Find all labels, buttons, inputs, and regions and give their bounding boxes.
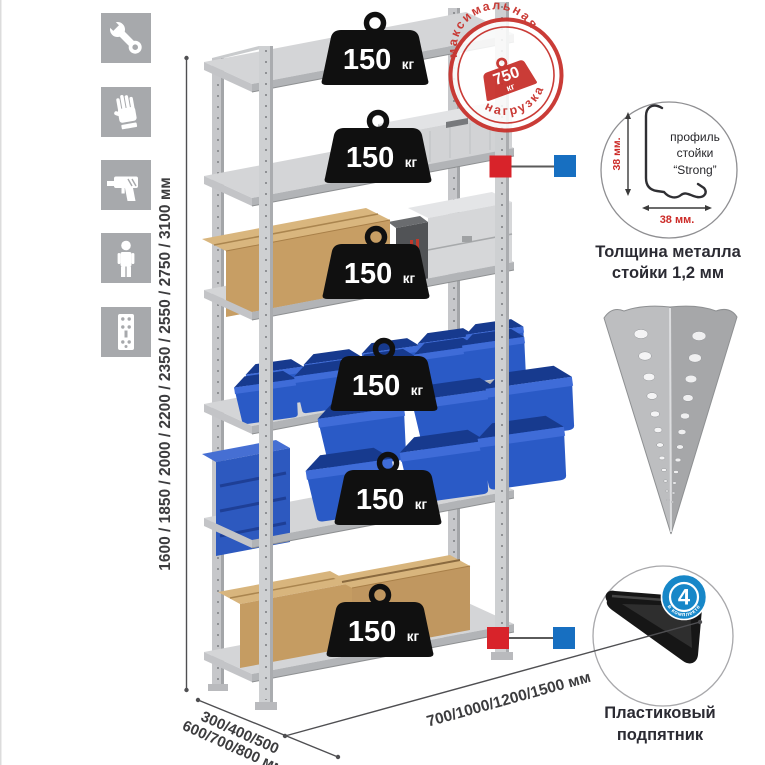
- profile-dim-horizontal-label: 38 мм.: [660, 214, 695, 226]
- marker-red-square-bottom: [487, 627, 509, 649]
- drill-icon: [101, 160, 151, 210]
- scene: 150 кг: [0, 0, 765, 765]
- gloves-icon: [101, 87, 151, 137]
- shelving-rack-infographic: 150 кг: [0, 0, 765, 765]
- width-dimension-label: 700/1000/1200/1500 мм: [425, 669, 593, 731]
- marker-red-square-top: [490, 156, 512, 178]
- features-icon-panel: [101, 13, 151, 357]
- profile-caption-line2: стойки 1,2 мм: [612, 264, 724, 282]
- marker-blue-square-top: [554, 155, 576, 177]
- height-dimension: 1600 / 1850 / 2000 / 2200 / 2350 / 2550 …: [157, 56, 189, 692]
- foot-caption-line2: подпятник: [617, 726, 704, 744]
- angle-post-image: [604, 306, 737, 534]
- profile-label-line2: стойки: [677, 146, 714, 160]
- foot-callout-marker: [487, 627, 575, 649]
- height-dimension-label: 1600 / 1850 / 2000 / 2200 / 2350 / 2550 …: [157, 177, 174, 571]
- perforated-post-icon: [101, 307, 151, 357]
- profile-callout-marker: [490, 155, 577, 178]
- page-edge-line: [0, 0, 2, 765]
- badge-value: 4: [678, 585, 691, 610]
- quantity-badge: 4 в комплекте: [662, 575, 707, 620]
- profile-caption-line1: Толщина металла: [595, 243, 741, 261]
- marker-blue-square-bottom: [553, 627, 575, 649]
- wrench-icon: [101, 13, 151, 63]
- profile-label-line1: профиль: [670, 130, 720, 144]
- person-icon: [101, 233, 151, 283]
- profile-detail: 38 мм. 38 мм. профиль стойки “Strong” То…: [595, 102, 741, 282]
- plastic-foot-detail: 4 в комплекте Пластиковый подпятник: [593, 566, 733, 744]
- foot-caption-line1: Пластиковый: [604, 704, 715, 722]
- profile-label-line3: “Strong”: [673, 163, 716, 177]
- profile-dim-vertical-label: 38 мм.: [611, 137, 623, 170]
